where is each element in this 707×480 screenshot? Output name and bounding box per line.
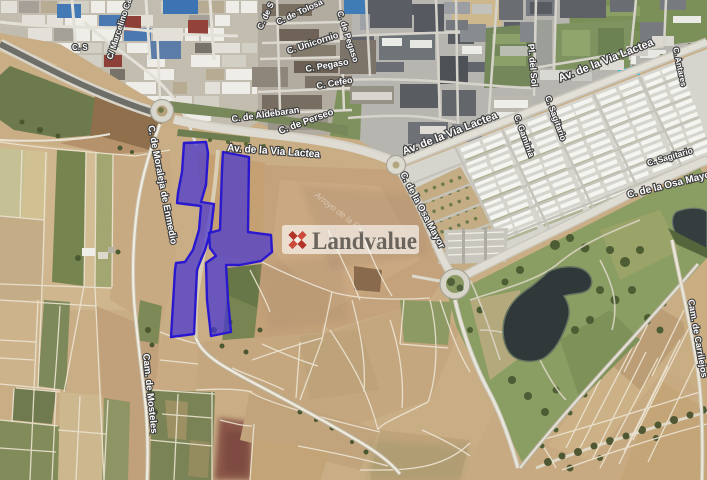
svg-text:C. S: C. S <box>72 43 88 52</box>
